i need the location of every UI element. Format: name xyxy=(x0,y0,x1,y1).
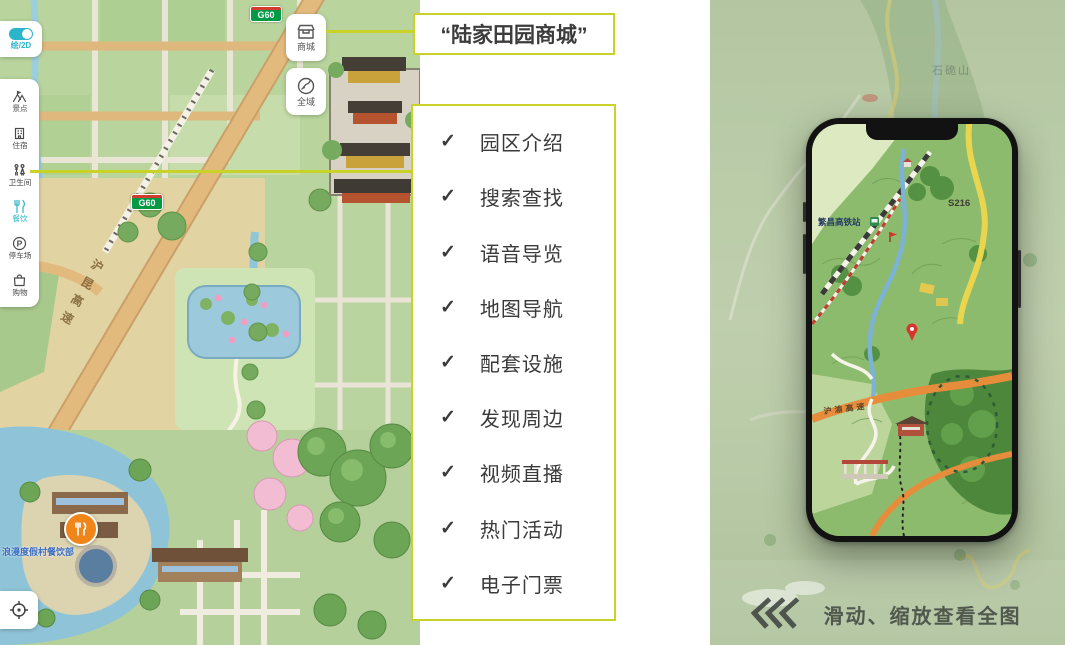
feature-label: 配套设施 xyxy=(480,348,564,377)
screenshot-stage: 沪昆高速 G60 G60 S324 浪漫度假村餐饮部 绘/2D xyxy=(0,0,1065,645)
feature-row: ✓园区介绍 xyxy=(413,127,614,156)
station-label: 繁昌高铁站 xyxy=(817,217,861,227)
locate-me-button[interactable] xyxy=(0,591,38,629)
feature-label: 视频直播 xyxy=(480,458,564,487)
check-icon: ✓ xyxy=(440,406,456,429)
view-toggle-label: 绘/2D xyxy=(11,42,31,50)
feature-row: ✓电子门票 xyxy=(413,569,614,598)
hotel-icon xyxy=(12,126,27,141)
sidebar-item-shopping[interactable]: 购物 xyxy=(0,273,39,297)
sidebar-item-label: 停车场 xyxy=(8,252,31,260)
feature-checklist: ✓园区介绍 ✓搜索查找 ✓语音导览 ✓地图导航 ✓配套设施 ✓发现周边 ✓视频直… xyxy=(411,104,616,621)
parking-icon: P xyxy=(12,236,27,251)
sidebar-item-restroom[interactable]: 卫生间 xyxy=(0,163,39,187)
check-icon: ✓ xyxy=(440,130,456,153)
shopping-bag-icon xyxy=(12,273,27,288)
toggle-switch-icon[interactable] xyxy=(9,28,33,40)
feature-label: 发现周边 xyxy=(480,403,564,432)
road-badge-g60-mid: G60 xyxy=(131,194,163,210)
mall-callout-connector xyxy=(326,30,413,33)
feature-label: 电子门票 xyxy=(480,569,564,598)
sidebar-item-label: 购物 xyxy=(12,289,27,297)
feature-row: ✓发现周边 xyxy=(413,403,614,432)
restroom-icon xyxy=(12,163,27,178)
check-icon: ✓ xyxy=(440,461,456,484)
global-view-button[interactable]: 全域 xyxy=(286,68,326,115)
hand-drawn-park-map[interactable]: 沪昆高速 G60 G60 S324 浪漫度假村餐饮部 绘/2D xyxy=(0,0,420,645)
utensils-icon xyxy=(74,522,88,536)
sidebar-item-lodging[interactable]: 住宿 xyxy=(0,126,39,150)
check-icon: ✓ xyxy=(440,185,456,208)
map-view-toggle[interactable]: 绘/2D xyxy=(0,21,42,57)
landmark-icon xyxy=(12,89,27,104)
global-button-label: 全域 xyxy=(297,98,315,107)
sidebar-item-parking[interactable]: P 停车场 xyxy=(0,236,39,260)
feature-label: 语音导览 xyxy=(480,238,564,267)
feature-label: 热门活动 xyxy=(480,514,564,543)
mall-callout-title: “陆家田园商城” xyxy=(441,19,588,49)
sidebar-item-label: 景点 xyxy=(12,106,27,114)
check-icon: ✓ xyxy=(440,517,456,540)
mall-button[interactable]: 商城 xyxy=(286,14,326,61)
mall-callout: “陆家田园商城” xyxy=(413,13,615,55)
s216-road-label: S216 xyxy=(948,198,970,209)
svg-text:P: P xyxy=(17,238,23,248)
phone-mute-switch xyxy=(803,202,806,222)
feature-row: ✓搜索查找 xyxy=(413,182,614,211)
road-badge-g60-top: G60 xyxy=(250,6,282,22)
sidebar-item-dining[interactable]: 餐饮 xyxy=(0,199,39,223)
sidebar-item-label: 住宿 xyxy=(12,142,27,150)
utensils-icon xyxy=(12,199,27,214)
feature-row: ✓配套设施 xyxy=(413,348,614,377)
feature-label: 搜索查找 xyxy=(480,182,564,211)
feature-row: ✓语音导览 xyxy=(413,238,614,267)
phone-volume-button xyxy=(803,234,806,274)
feature-row: ✓热门活动 xyxy=(413,514,614,543)
sidebar-item-scenic[interactable]: 景点 xyxy=(0,89,39,113)
shop-icon xyxy=(296,23,316,41)
check-icon: ✓ xyxy=(440,351,456,374)
feature-row: ✓视频直播 xyxy=(413,458,614,487)
feature-label: 园区介绍 xyxy=(480,127,564,156)
sidebar-item-label: 餐饮 xyxy=(12,215,27,223)
check-icon: ✓ xyxy=(440,572,456,595)
phone-map-illustration: 繁昌高铁站 S216 沪渝高速 xyxy=(812,124,1012,536)
crosshair-icon xyxy=(9,600,29,620)
map-category-sidebar: 景点 住宿 卫生间 餐饮 xyxy=(0,79,39,307)
phone-mockup: 繁昌高铁站 S216 沪渝高速 xyxy=(806,118,1018,542)
swipe-hint-text: 滑动、缩放查看全图 xyxy=(800,600,1045,629)
phone-power-button xyxy=(1018,250,1021,308)
dining-poi-label: 浪漫度假村餐饮部 xyxy=(2,545,74,558)
check-icon: ✓ xyxy=(440,296,456,319)
feature-row: ✓地图导航 xyxy=(413,293,614,322)
mall-button-label: 商城 xyxy=(297,43,315,52)
compass-icon xyxy=(296,76,316,96)
check-icon: ✓ xyxy=(440,241,456,264)
feature-label: 地图导航 xyxy=(480,293,564,322)
sidebar-item-label: 卫生间 xyxy=(8,179,31,187)
phone-notch xyxy=(866,124,958,140)
dining-poi-marker[interactable] xyxy=(64,512,98,546)
phone-screen: 繁昌高铁站 S216 沪渝高速 xyxy=(812,124,1012,536)
features-connector xyxy=(30,170,413,173)
